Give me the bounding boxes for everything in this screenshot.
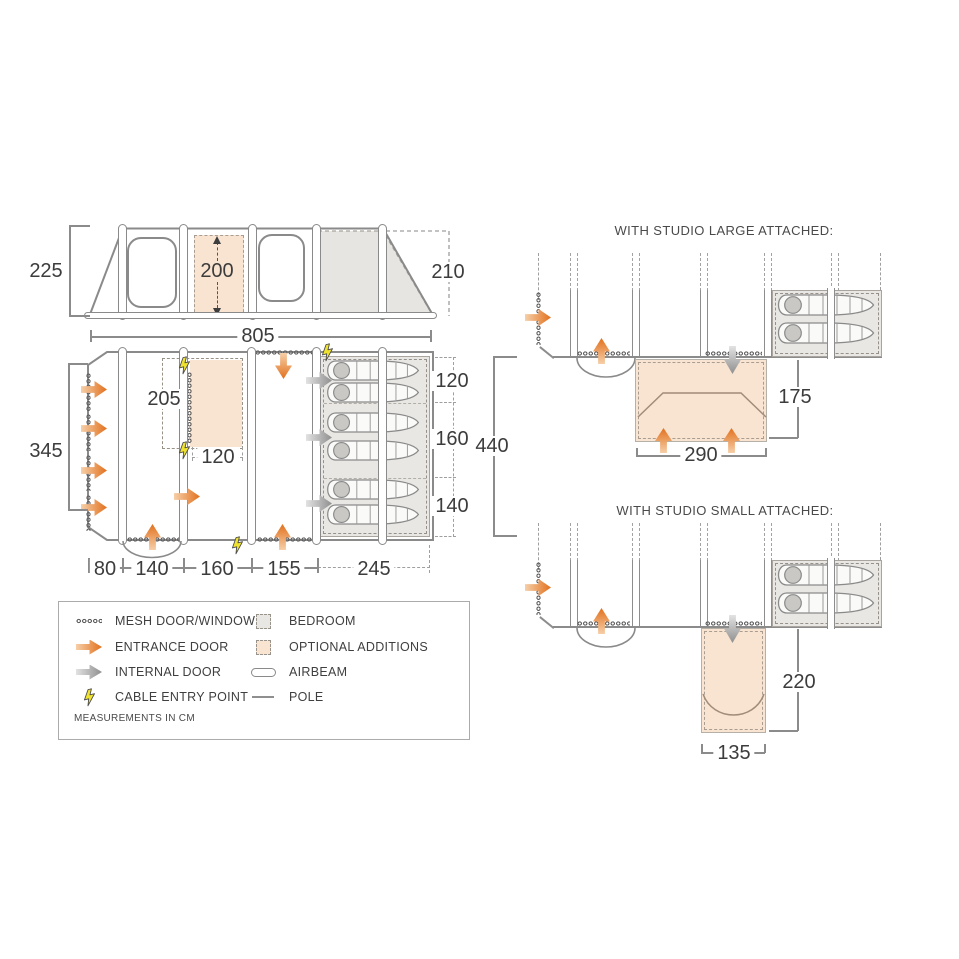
studio-large-title: WITH STUDIO LARGE ATTACHED:	[614, 223, 833, 238]
pole-line	[764, 253, 772, 291]
dim-tick	[764, 744, 766, 753]
airbeam	[118, 347, 127, 545]
dim-leader	[769, 730, 798, 732]
legend-item-label: POLE	[289, 690, 324, 704]
measurements-note: MEASUREMENTS IN CM	[74, 713, 195, 724]
bedroom-swatch-icon	[256, 614, 271, 629]
dim-line	[68, 363, 70, 511]
pole-line	[827, 558, 835, 629]
airbeam	[378, 224, 387, 320]
dim-optional-height: 205	[143, 389, 184, 409]
tent-floorplan-diagram: 200 225 210 805	[0, 0, 959, 959]
pole-line	[700, 290, 708, 357]
dim-line	[69, 225, 71, 317]
dim-tick	[68, 363, 88, 365]
dim-tick	[701, 744, 703, 753]
studio-door-arc	[701, 688, 766, 726]
dim-tick	[493, 356, 517, 358]
pole-line	[764, 290, 772, 357]
legend-item-cable: CABLE ENTRY POINT	[72, 688, 248, 706]
airbeam	[247, 347, 256, 545]
dim-optional-width: 120	[197, 447, 238, 467]
pole-line	[700, 560, 708, 627]
airbeam	[118, 224, 127, 320]
dim-tick	[493, 535, 517, 537]
legend-item-airbeam: AIRBEAM	[246, 663, 347, 681]
dim-studio-large-depth: 175	[774, 387, 815, 407]
airbeam-icon	[251, 668, 276, 677]
legend-item-label: AIRBEAM	[289, 665, 347, 679]
pole-line	[570, 290, 578, 357]
door-arc	[574, 357, 638, 381]
elevation-window	[258, 234, 305, 302]
dim-bottom-5: 245	[353, 559, 394, 579]
dim-studio-small-width: 135	[713, 743, 754, 763]
airbeam	[378, 347, 387, 545]
elevation-groundbar	[84, 312, 437, 319]
pole-line	[764, 523, 772, 561]
legend-item-internal: INTERNAL DOOR	[72, 663, 221, 681]
legend-item-pole: POLE	[246, 688, 324, 706]
dim-bedroom-top: 120	[431, 371, 472, 391]
sleeping-bag	[324, 382, 424, 403]
airbeam	[179, 224, 188, 320]
dim-tick	[68, 509, 88, 511]
dim-bottom-4: 155	[263, 559, 304, 579]
pole-line	[632, 290, 640, 357]
pole-line	[880, 523, 881, 560]
pole-line	[764, 560, 772, 627]
pole-line	[632, 523, 640, 561]
legend-item-entrance: ENTRANCE DOOR	[72, 638, 229, 656]
pole-line	[827, 288, 835, 359]
sleeping-bag	[324, 412, 424, 433]
legend-item-label: CABLE ENTRY POINT	[115, 690, 248, 704]
pole-line	[880, 253, 881, 290]
dim-height-right: 210	[427, 262, 468, 282]
door-arc	[574, 627, 638, 651]
airbeam	[312, 224, 321, 320]
optional-swatch-icon	[256, 640, 271, 655]
door-height-arrow-line	[217, 282, 218, 308]
dim-dash-tick	[435, 477, 456, 478]
tent-wall-chamfer	[539, 616, 554, 629]
sleeping-bag	[324, 360, 424, 381]
bedroom-divider	[324, 403, 426, 404]
dim-dash-tick	[435, 357, 456, 358]
optional-room-fill	[190, 360, 242, 447]
pole-line	[570, 253, 578, 291]
legend-item-label: BEDROOM	[289, 614, 356, 628]
entrance-arrow-icon	[76, 640, 102, 655]
airbeam	[312, 347, 321, 545]
dim-tick	[765, 448, 767, 457]
dim-side-length: 345	[25, 441, 66, 461]
mesh-window	[85, 414, 92, 451]
sleeping-bag	[324, 479, 424, 500]
pole-line	[831, 523, 839, 561]
dim-tick	[430, 330, 432, 342]
dim-height-left: 225	[25, 261, 66, 281]
elevation-window	[127, 237, 177, 308]
dim-tick	[183, 558, 185, 573]
pole-line	[570, 523, 578, 561]
legend-item-label: MESH DOOR/WINDOW	[115, 614, 255, 628]
pole-line	[570, 560, 578, 627]
dim-tick	[317, 558, 319, 573]
dim-leader	[769, 437, 798, 439]
dim-studio-small-depth: 220	[778, 672, 819, 692]
sleeping-bag	[324, 440, 424, 461]
dim-bottom-1: 80	[90, 559, 120, 579]
dim-tick	[636, 448, 638, 457]
dim-dash	[242, 447, 243, 461]
cable-bolt-icon	[81, 687, 98, 707]
pole-icon	[252, 696, 274, 698]
dim-tick	[69, 225, 90, 227]
legend-item-label: ENTRANCE DOOR	[115, 640, 229, 654]
dim-width-total: 805	[237, 326, 278, 346]
legend-item-label: INTERNAL DOOR	[115, 665, 221, 679]
dim-bedroom-middle: 160	[431, 429, 472, 449]
legend-item-bedroom: BEDROOM	[246, 612, 356, 630]
legend-item-mesh: MESH DOOR/WINDOW	[72, 612, 255, 630]
dim-tick	[122, 558, 124, 573]
dim-studio-large-width: 290	[680, 445, 721, 465]
studio-small-title: WITH STUDIO SMALL ATTACHED:	[616, 503, 833, 518]
dim-dash-tick	[435, 536, 456, 537]
dim-door-height: 200	[196, 261, 237, 281]
airbeam	[248, 224, 257, 320]
legend-item-label: OPTIONAL ADDITIONS	[289, 640, 428, 654]
dim-depth-total: 440	[471, 436, 512, 456]
door-height-arrow-line	[217, 242, 218, 261]
studio-window-line	[635, 390, 767, 420]
dim-dash-tick	[435, 402, 456, 403]
pole-line	[632, 560, 640, 627]
dim-bottom-2: 140	[131, 559, 172, 579]
legend-item-optional: OPTIONAL ADDITIONS	[246, 638, 428, 656]
dim-tick	[251, 558, 253, 573]
dim-bedroom-bottom: 140	[431, 496, 472, 516]
dim-tick	[69, 315, 90, 317]
tent-wall-chamfer	[539, 346, 554, 359]
internal-arrow-icon	[76, 665, 102, 680]
arrowhead-up-icon	[213, 236, 221, 244]
pole-line	[700, 523, 708, 561]
elevation-bedroom-shade	[318, 231, 433, 316]
dim-bottom-3: 160	[196, 559, 237, 579]
dim-dash-tick	[429, 545, 430, 573]
mesh-window	[85, 495, 92, 531]
pole-line	[632, 253, 640, 291]
mesh-swatch-icon	[76, 617, 102, 625]
pole-line	[831, 253, 839, 291]
dim-dash	[192, 447, 193, 461]
dim-tick	[90, 330, 92, 342]
pole-line	[700, 253, 708, 291]
sleeping-bag	[324, 504, 424, 525]
